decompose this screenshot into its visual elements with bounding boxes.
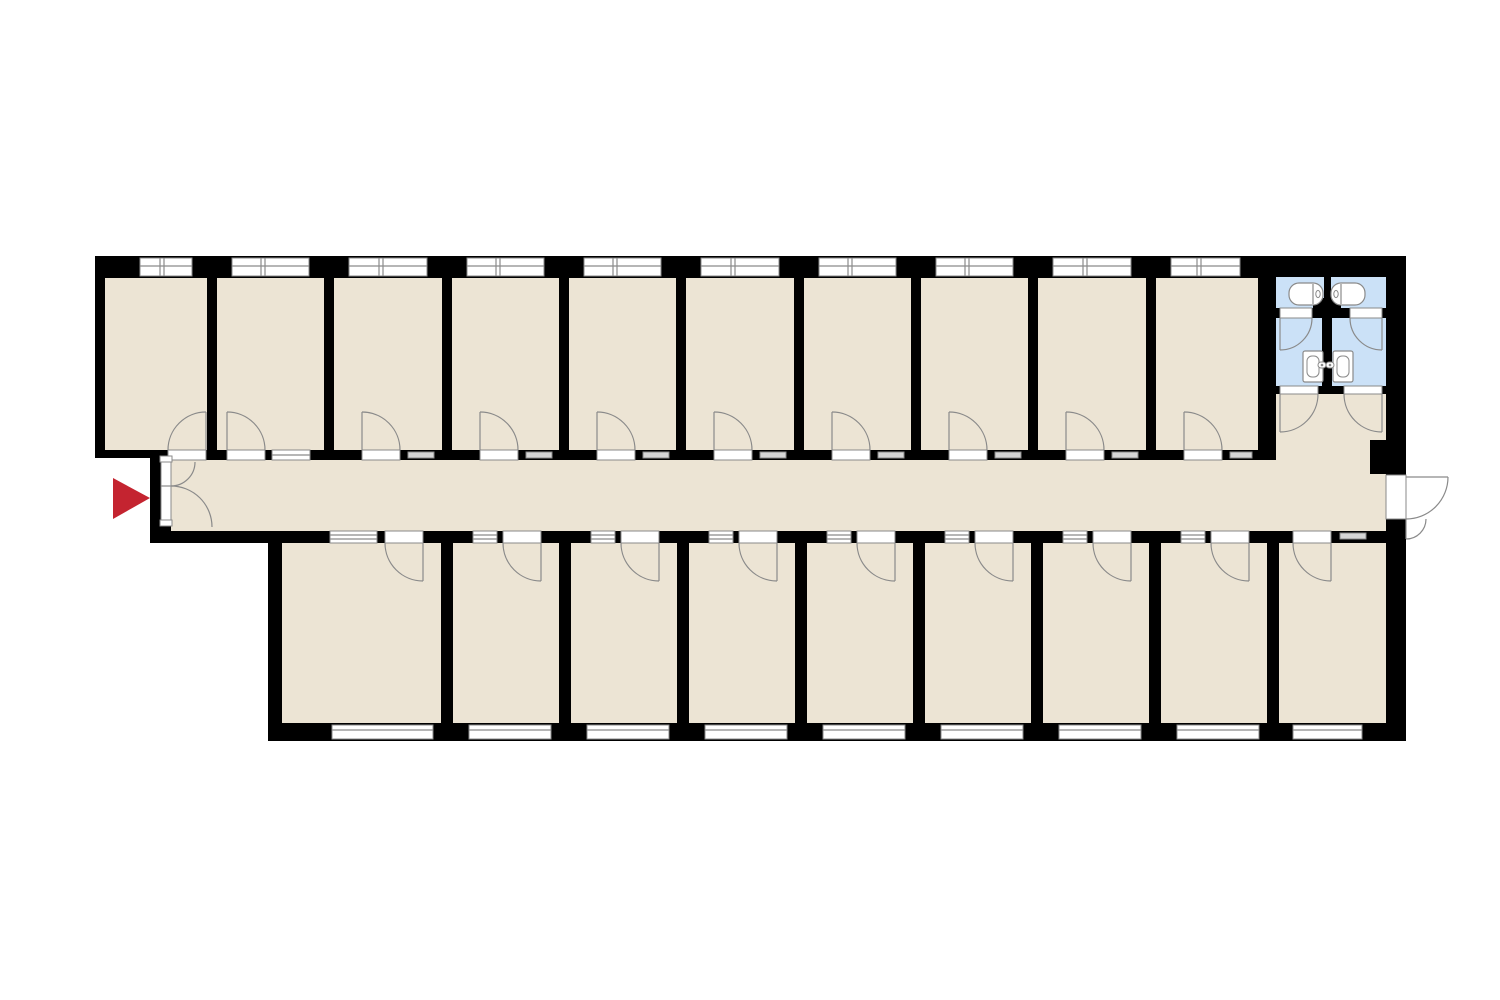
facade-window [819,258,896,276]
facade-window [469,725,551,739]
facade-window [1293,725,1362,739]
room-floor [1279,543,1386,723]
room-bottom-5 [807,531,913,739]
facade-window [823,725,905,739]
door-opening [597,450,635,460]
corridor-sidelight [827,531,851,543]
door-opening [1184,450,1222,460]
room-top-6 [686,258,794,460]
facade-window [140,258,192,276]
facade-window [1177,725,1259,739]
door-opening [975,531,1013,543]
entrance-opening [161,457,171,526]
room-bottom-7 [1043,531,1149,739]
room-bottom-3 [571,531,677,739]
bathtub-1 [1289,283,1323,305]
room-top-1 [105,258,207,460]
room-floor [925,543,1031,723]
window-pane [467,258,544,276]
facade-window [349,258,427,276]
facade-window [332,725,433,739]
corridor-sidelight [330,531,377,543]
room-bottom-9 [1279,531,1386,739]
sidelight-pane [591,531,615,543]
facade-window [1053,258,1131,276]
bathtub-knob [1316,290,1320,297]
entrance-frame-1 [160,456,172,462]
room-floor [1161,543,1267,723]
window-pane [332,725,433,739]
toilet-bowl [1307,356,1319,377]
corridor-sidelight [473,531,497,543]
room-top-2 [217,258,324,460]
room-floor [807,543,913,723]
wall-vent [760,452,786,458]
corridor-sidelight [272,450,310,460]
door-opening [949,450,987,460]
window-pane [587,725,669,739]
window-pane [701,258,779,276]
room-floor [571,543,677,723]
door-opening [1293,531,1331,543]
wall-pillar [1370,440,1386,474]
facade-window [701,258,779,276]
window-pane [705,725,787,739]
toilet-bowl [1337,356,1349,377]
facade-window [936,258,1013,276]
facade-window [587,725,669,739]
corridor-sidelight [1063,531,1087,543]
wall-vent [1112,452,1138,458]
wc-stall-door-opening-2 [1350,308,1382,318]
room-floor [453,543,559,723]
door-opening [714,450,752,460]
floor-plan [95,256,1448,741]
wall-vent [1230,452,1252,458]
sidelight-pane [1063,531,1087,543]
wall-vent [526,452,552,458]
facade-window [941,725,1023,739]
room-floor [334,278,442,450]
vestibule-floor [1276,394,1386,460]
window-pane [349,258,427,276]
exit-opening [1386,475,1406,519]
facade-window [232,258,309,276]
facade-window [1171,258,1240,276]
room-top-5 [569,258,676,460]
window-pane [140,258,192,276]
facade-window [584,258,661,276]
window-pane [936,258,1013,276]
sidelight-pane [330,531,377,543]
bath-vestibule-door-opening-1 [1280,386,1318,394]
window-pane [584,258,661,276]
room-floor [686,278,794,450]
toilet-flush-dot [1329,364,1332,367]
sidelight-pane [473,531,497,543]
wc-stall-door-opening-1 [1280,308,1312,318]
door-opening [503,531,541,543]
door-opening [385,531,423,543]
bathtub-2 [1331,283,1365,305]
room-top-3 [334,258,442,460]
room-floor [217,278,324,450]
room-floor [1043,543,1149,723]
door-opening [1211,531,1249,543]
room-floor [804,278,911,450]
wall-vent [878,452,904,458]
window-pane [1177,725,1259,739]
room-bottom-8 [1161,531,1267,739]
room-floor [452,278,559,450]
door-opening [1093,531,1131,543]
floor-plan-svg [0,0,1500,1000]
wall-vent [408,452,434,458]
door-opening [857,531,895,543]
room-top-4 [452,258,559,460]
room-top-7 [804,258,911,460]
window-pane [469,725,551,739]
corridor-sidelight [1181,531,1205,543]
window-pane [1059,725,1141,739]
door-opening [168,450,206,460]
room-bottom-1 [282,531,441,739]
facade-window [467,258,544,276]
sidelight-pane [827,531,851,543]
corridor-sidelight [945,531,969,543]
wall-vent [1340,533,1366,539]
facade-window [705,725,787,739]
room-floor [1038,278,1146,450]
room-bottom-6 [925,531,1031,739]
window-pane [941,725,1023,739]
sidelight-pane [709,531,733,543]
room-top-10 [1156,258,1258,460]
facade-window [1059,725,1141,739]
floor-plan-canvas [0,0,1500,1000]
room-floor [921,278,1028,450]
bathtub-knob [1334,290,1338,297]
room-floor [689,543,795,723]
door-opening [1066,450,1104,460]
wall-vent [643,452,669,458]
door-opening [832,450,870,460]
door-opening [621,531,659,543]
door-opening [480,450,518,460]
door-opening [362,450,400,460]
room-floor [282,543,441,723]
corridor-sidelight [709,531,733,543]
window-pane [1171,258,1240,276]
room-top-8 [921,258,1028,460]
room-floor [569,278,676,450]
room-bottom-4 [689,531,795,739]
bath-vestibule-door-opening-2 [1344,386,1382,394]
sidelight-pane [1181,531,1205,543]
door-opening [739,531,777,543]
corridor-floor [171,460,1386,531]
window-pane [823,725,905,739]
sidelight-pane [945,531,969,543]
room-floor [105,278,207,450]
room-top-9 [1038,258,1146,460]
toilet-flush-dot [1321,364,1324,367]
corridor-sidelight [591,531,615,543]
window-pane [1293,725,1362,739]
toilet-1 [1303,351,1326,382]
window-pane [819,258,896,276]
door-opening [227,450,265,460]
window-pane [1053,258,1131,276]
window-pane [232,258,309,276]
room-floor [1156,278,1258,450]
entrance-frame-2 [160,520,172,526]
wall-vent [995,452,1021,458]
room-bottom-2 [453,531,559,739]
